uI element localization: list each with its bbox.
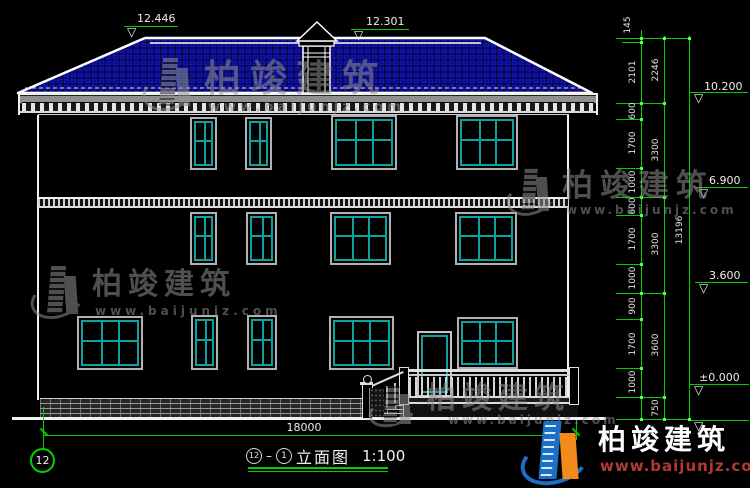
- watermark-url: www.baijunjz.com: [208, 101, 405, 114]
- dim-label: 2101: [628, 61, 638, 84]
- level-triangle-icon: ▽: [694, 93, 703, 103]
- title-underline: [248, 467, 388, 469]
- dim-label: 1000: [628, 267, 638, 290]
- watermark-name: 柏竣建筑: [562, 171, 714, 202]
- title-scale: 1:100: [362, 447, 405, 465]
- title-axis-bubble-right: 1: [276, 448, 292, 464]
- dim-tick: [622, 42, 642, 43]
- title-underline: [248, 471, 388, 472]
- window-narrow: [190, 212, 217, 265]
- window-large: [329, 316, 394, 370]
- window-narrow: [247, 315, 277, 370]
- dim-line-col1: [641, 30, 642, 420]
- dim-dot: [688, 37, 691, 40]
- window-narrow: [190, 117, 217, 170]
- dim-label: 3600: [651, 334, 661, 357]
- dim-label-total: 13196: [675, 216, 685, 245]
- brand-name: 柏竣建筑: [598, 426, 730, 454]
- dim-dot: [640, 102, 643, 105]
- window-large: [457, 317, 518, 369]
- watermark-logo-icon: [142, 56, 198, 112]
- string-course-dentils: [38, 199, 569, 206]
- level-label: 12.301: [366, 15, 405, 28]
- dim-dot: [640, 292, 643, 295]
- drawing-title: 12 – 1 立面图 1:100: [246, 444, 405, 468]
- dim-label: 3300: [651, 139, 661, 162]
- dim-tick: [616, 319, 642, 320]
- dim-line-col2: [664, 36, 665, 420]
- grid-bubble: 12: [30, 448, 55, 473]
- dim-label: 900: [628, 297, 638, 314]
- window-large: [455, 212, 517, 265]
- brick-plinth: [40, 398, 372, 419]
- dim-tick: [616, 368, 642, 369]
- watermark-url: www.baijunjz.com: [566, 204, 737, 216]
- watermark-url: www.baijunjz.com: [95, 305, 282, 317]
- dim-label: 750: [651, 399, 661, 416]
- level-triangle-icon: ▽: [699, 283, 708, 293]
- level-triangle-icon: ▽: [354, 30, 363, 40]
- brand-url: www.baijunjz.com: [600, 459, 750, 474]
- eave-right-return: [596, 93, 598, 115]
- dim-tick: [616, 38, 690, 39]
- dim-dot: [640, 318, 643, 321]
- wall-left-edge: [37, 115, 39, 400]
- title-name: 立面图: [296, 444, 350, 468]
- watermark-name: 柏竣建筑: [92, 270, 236, 300]
- dim-dot: [640, 367, 643, 370]
- grid-axis-line: [43, 407, 44, 449]
- window-narrow: [246, 212, 277, 265]
- dim-label-width: 18000: [280, 421, 328, 434]
- level-triangle-icon: ▽: [694, 385, 703, 395]
- brand-block: 柏竣建筑 www.baijunjz.com: [518, 416, 750, 488]
- window-large: [456, 115, 518, 170]
- watermark-logo-icon: [368, 384, 418, 428]
- elevation-drawing: 12.446 ▽ 12.301 ▽ 10.200 ▽ 6.900 ▽ 3.600…: [0, 0, 750, 488]
- window-narrow: [245, 117, 272, 170]
- dim-label: 1700: [628, 333, 638, 356]
- railing-post: [569, 367, 579, 405]
- newel-ball: [363, 375, 372, 384]
- dim-dot: [663, 292, 666, 295]
- title-axis-bubble-left: 12: [246, 448, 262, 464]
- brand-logo-icon: [520, 420, 586, 486]
- level-label: 12.446: [137, 12, 176, 25]
- handrail-line: [401, 374, 577, 376]
- dim-dot: [640, 41, 643, 44]
- watermark-logo-icon: [30, 264, 86, 320]
- watermark-name: 柏竣建筑: [426, 384, 570, 414]
- dim-tick: [616, 264, 642, 265]
- level-label: ±0.000: [699, 371, 740, 384]
- dim-dot: [640, 396, 643, 399]
- handrail: [401, 369, 577, 372]
- title-separator: –: [266, 449, 272, 463]
- wall-right-edge: [567, 115, 569, 400]
- dim-label: 1700: [628, 132, 638, 155]
- dim-dot: [663, 396, 666, 399]
- dim-dot: [640, 118, 643, 121]
- dim-label: 2246: [651, 59, 661, 82]
- dim-label: 600: [628, 102, 638, 119]
- window-narrow: [191, 315, 218, 370]
- watermark-name: 柏竣建筑: [204, 60, 388, 97]
- window-large: [331, 115, 397, 170]
- string-course-bottom: [38, 206, 569, 208]
- dim-dot: [640, 37, 643, 40]
- dim-dot: [663, 102, 666, 105]
- dim-label: 1000: [628, 371, 638, 394]
- dim-label: 3300: [651, 233, 661, 256]
- dim-label: 145: [623, 16, 633, 33]
- window-large: [77, 316, 143, 370]
- dim-line-width: [43, 435, 577, 436]
- level-label: 3.600: [709, 269, 741, 282]
- chimney-cap: [297, 22, 337, 41]
- level-triangle-icon: ▽: [127, 27, 136, 37]
- dim-dot: [663, 37, 666, 40]
- dim-dot: [640, 263, 643, 266]
- dim-label: 1700: [628, 228, 638, 251]
- watermark-logo-icon: [506, 166, 556, 216]
- dim-line-col3: [689, 36, 690, 420]
- eave-left-return: [18, 93, 20, 115]
- window-large: [330, 212, 391, 265]
